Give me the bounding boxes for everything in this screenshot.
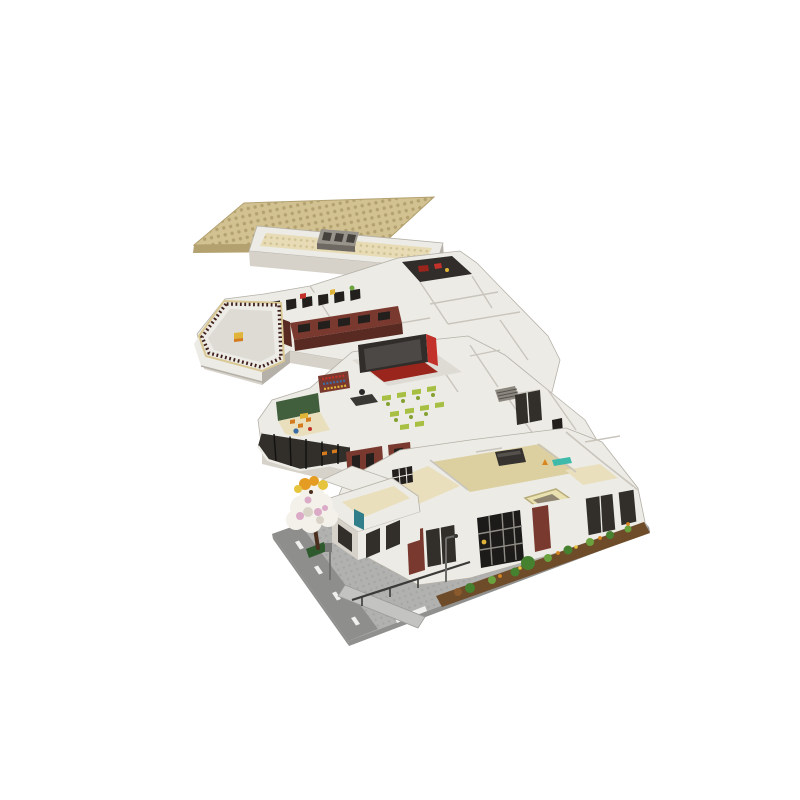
- garden-bush: [544, 554, 552, 562]
- kids-chair: [290, 419, 295, 424]
- plant-accent: [350, 286, 355, 291]
- garden-bush: [586, 538, 594, 546]
- student-chair: [401, 399, 405, 403]
- garden-shrub-dry: [454, 588, 462, 596]
- shelf-accent-yellow: [330, 289, 335, 295]
- entrance-black-section: [477, 510, 524, 568]
- tree-blossom-pink: [314, 508, 322, 516]
- garden-bush: [625, 526, 632, 533]
- bay-interior-chair: [332, 449, 337, 453]
- bay-interior-chair: [322, 451, 327, 455]
- exploded-building-render: [0, 0, 800, 800]
- garden-bush: [511, 568, 520, 577]
- tree-twig: [309, 490, 313, 494]
- student-chair: [394, 418, 398, 422]
- student-chair: [431, 393, 435, 397]
- play-ball-red: [308, 427, 312, 431]
- garden-bush: [465, 583, 475, 593]
- tree-blossom-pink: [322, 505, 328, 511]
- tree-blossom-pink: [305, 497, 312, 504]
- tree-flower-yellow: [294, 485, 302, 493]
- garden-flower: [626, 522, 630, 526]
- tree-blossom-shade: [303, 507, 313, 517]
- garden-flower: [574, 545, 578, 549]
- garden-bush: [521, 556, 535, 570]
- garden-bush: [564, 546, 573, 555]
- garden-bush: [606, 531, 614, 539]
- garden-flower: [556, 551, 560, 555]
- garden-flower: [498, 574, 502, 578]
- student-chair: [386, 402, 390, 406]
- student-chair: [409, 415, 413, 419]
- facade-red-panel: [532, 505, 551, 552]
- tree-flower-orange: [309, 476, 319, 486]
- media-room-sofa: [418, 265, 429, 272]
- mullion: [290, 437, 291, 467]
- student-chair: [424, 412, 428, 416]
- east-glass-door: [618, 489, 637, 526]
- play-ball-blue: [293, 428, 298, 433]
- media-room-sofa: [434, 263, 442, 269]
- student-chair: [416, 396, 420, 400]
- tree-flower-yellow: [318, 480, 328, 490]
- garden-flower: [598, 536, 602, 540]
- tree-blossom-pink: [296, 512, 304, 520]
- tree-blossom-shade: [316, 516, 324, 524]
- street-sign: [325, 543, 332, 552]
- kids-chair: [298, 423, 303, 428]
- media-room-lamp: [445, 268, 449, 272]
- entrance-light: [482, 540, 487, 545]
- lamp-head: [454, 534, 458, 538]
- garden-bush: [488, 576, 496, 584]
- terrace-crate: [234, 332, 243, 339]
- teacher-chair: [359, 389, 365, 395]
- product-image: [0, 0, 800, 800]
- kids-chair: [306, 417, 311, 422]
- garden-flower: [518, 566, 522, 570]
- shelf-accent-red: [300, 293, 306, 299]
